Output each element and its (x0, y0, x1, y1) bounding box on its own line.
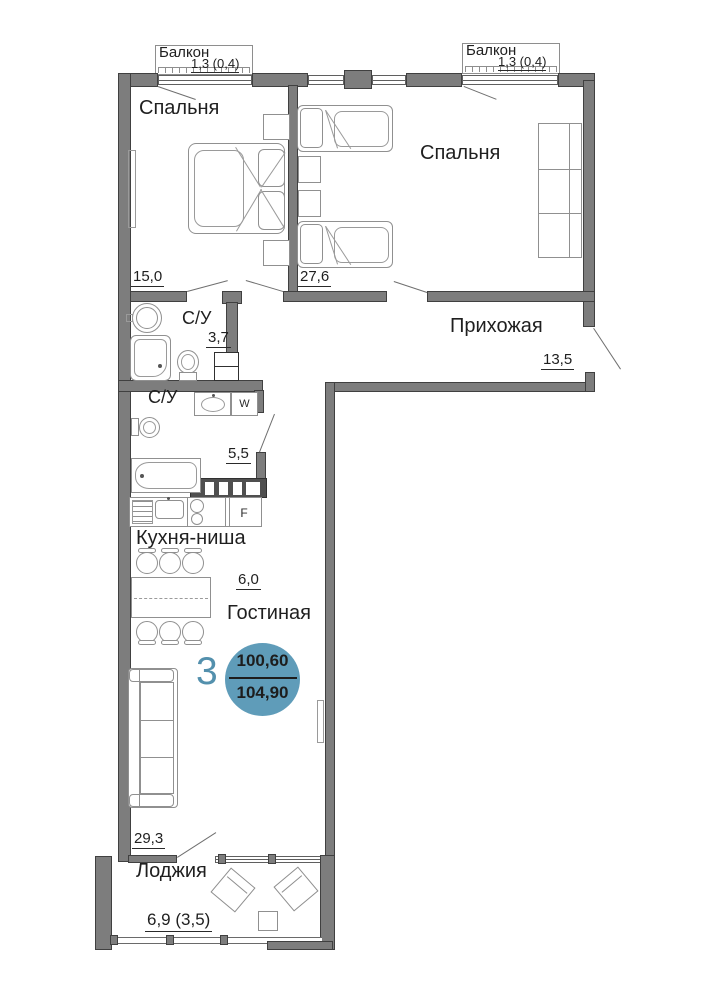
badge-fraction-line (229, 677, 297, 679)
radiator-icon (128, 150, 136, 228)
toilet-icon (139, 417, 160, 438)
double-bed-blanket (194, 150, 244, 227)
loggia-chair-icon (273, 866, 318, 911)
wall-pier (344, 70, 372, 89)
chair-back (184, 640, 202, 645)
vanity-sink-icon (194, 392, 231, 416)
door-leaf-entrance (593, 328, 621, 369)
wall-corridor-top-c (427, 291, 595, 302)
door-leaf-loggia (177, 832, 216, 858)
area-living: 29,3 (132, 830, 165, 849)
fridge-label: F (228, 500, 260, 525)
room-label-hallway: Прихожая (450, 315, 543, 338)
pillow-icon (258, 149, 285, 187)
wall-loggia-right-pillar (320, 855, 335, 950)
room-label-bath-bottom: С/У (148, 387, 177, 408)
sofa-icon (128, 668, 178, 808)
wall-slotted (190, 478, 267, 498)
wall-bath-divider (118, 380, 263, 392)
dish-drainer-icon (132, 500, 153, 524)
shower-tray-icon (130, 335, 171, 381)
chair-icon (182, 552, 204, 574)
radiator-icon (317, 700, 324, 743)
nightstand-icon (298, 156, 321, 183)
door-leaf-corridor-nook (246, 280, 284, 292)
loggia-chair-icon (210, 867, 255, 912)
window-post (268, 854, 276, 864)
door-leaf-bath-bottom (259, 414, 275, 453)
balcony-right-area: 1,3 (0,4) (498, 54, 546, 71)
wall-corridor-top-a (130, 291, 187, 302)
wall-hall-bottom (325, 382, 595, 392)
kitchen-sink-icon (155, 500, 184, 519)
stove-burner-icon (190, 499, 204, 513)
room-label-loggia: Лоджия (136, 860, 207, 883)
toilet-tank (179, 372, 197, 381)
area-hallway: 13,5 (541, 351, 574, 370)
balcony-left-area: 1,3 (0,4) (191, 56, 239, 73)
door-leaf-bedroom-right (394, 281, 428, 293)
area-bedroom-right: 27,6 (298, 268, 331, 287)
bathtub-icon (131, 458, 201, 493)
washing-machine-label: W (231, 392, 258, 416)
round-sink-icon (132, 303, 162, 333)
wall (406, 73, 462, 87)
pillow-icon (300, 108, 323, 148)
area-bath-top: 3,7 (206, 329, 231, 348)
wall-loggia-bottom-right (267, 941, 333, 950)
chair-icon (159, 552, 181, 574)
wall-right-exterior (583, 80, 595, 327)
chair-back (138, 640, 156, 645)
railing-post (220, 935, 228, 945)
nightstand-icon (298, 190, 321, 217)
room-label-bath-top: С/У (182, 308, 211, 329)
room-label-bedroom-right: Спальня (420, 142, 500, 165)
tap-icon (167, 497, 170, 500)
toilet-icon (177, 350, 199, 374)
room-label-bedroom-left: Спальня (139, 97, 219, 120)
stove-burner-icon (191, 513, 203, 525)
blanket-outline (334, 227, 389, 263)
room-label-living: Гостиная (227, 602, 311, 625)
floor-plan: Балкон 1,3 (0,4) Балкон 1,3 (0,4) (0, 0, 707, 1000)
nightstand-icon (263, 114, 290, 140)
wall (252, 73, 308, 87)
rooms-count: 3 (196, 650, 218, 694)
loggia-table-icon (258, 911, 278, 931)
tap-icon (126, 314, 133, 322)
window-bedroom-right-1 (308, 75, 344, 85)
chair-icon (136, 552, 158, 574)
wall-corridor-top-b (283, 291, 387, 302)
pillow-icon (300, 224, 323, 264)
toilet-tank (131, 418, 139, 436)
blanket-outline (334, 111, 389, 147)
window-balcony-right (462, 75, 558, 85)
room-label-kitchen: Кухня-ниша (136, 527, 246, 550)
area-bath-bottom: 5,5 (226, 445, 251, 464)
area-loggia: 6,9 (3,5) (145, 910, 212, 932)
plumbing-shaft (214, 352, 239, 381)
total-area-value: 104,90 (222, 683, 303, 703)
chair-back (161, 640, 179, 645)
railing-post (110, 935, 118, 945)
window-balcony-left (158, 75, 252, 85)
dining-table-icon (131, 577, 211, 618)
wall-entry-notch (585, 372, 595, 392)
area-bedroom-left: 15,0 (131, 268, 164, 287)
door-leaf-balcony-right (464, 86, 497, 100)
railing-post (166, 935, 174, 945)
wardrobe-icon (538, 123, 582, 258)
area-kitchen: 6,0 (236, 571, 261, 590)
window-bedroom-right-2 (372, 75, 406, 85)
living-area-value: 100,60 (222, 651, 303, 671)
nightstand-icon (263, 240, 290, 266)
window-post (218, 854, 226, 864)
wall-living-right (325, 382, 335, 857)
